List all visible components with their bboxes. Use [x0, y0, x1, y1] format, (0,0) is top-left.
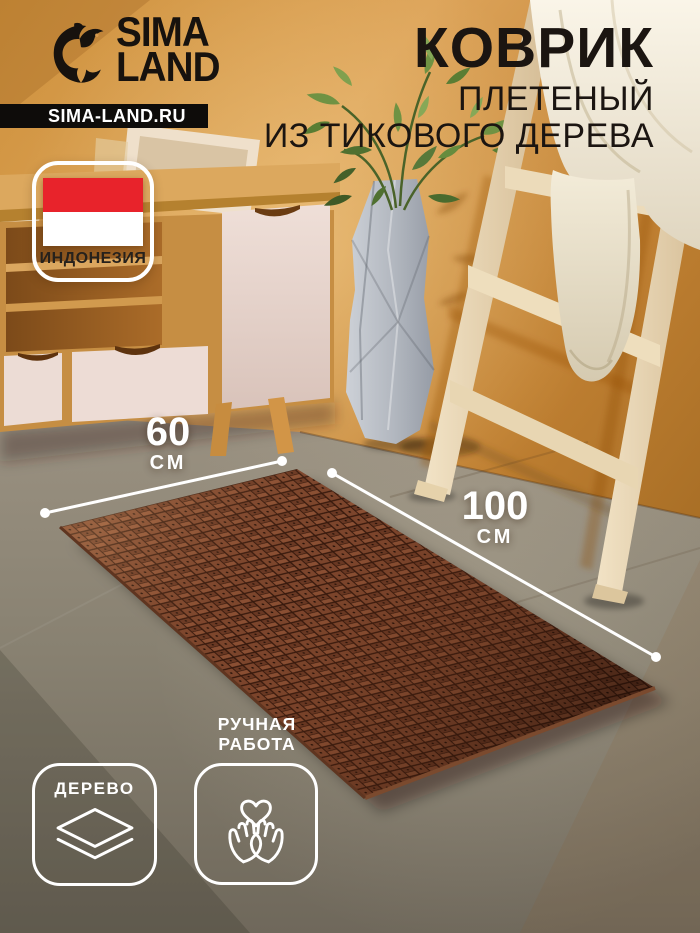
product-photo-card: SIMA LAND SIMA-LAND.RU КОВРИК ПЛЕТЕНЫЙ И… [0, 0, 700, 933]
website-url: SIMA-LAND.RU [48, 106, 186, 127]
length-value: 100 [452, 486, 538, 526]
dolphin-logo-icon [48, 18, 114, 92]
indonesia-flag [43, 178, 143, 246]
product-subtitle-line2: ИЗ ТИКОВОГО ДЕРЕВА [264, 118, 654, 155]
dimension-width-label: 60 СМ [126, 412, 210, 474]
origin-badge: ИНДОНЕЗИЯ [32, 161, 154, 282]
handmade-badge [194, 763, 318, 885]
product-title-block: КОВРИК ПЛЕТЕНЫЙ ИЗ ТИКОВОГО ДЕРЕВА [264, 20, 654, 155]
layers-icon [51, 806, 139, 864]
flag-white-stripe [43, 212, 143, 246]
product-title: КОВРИК [264, 20, 654, 76]
brand-logo: SIMA LAND [116, 14, 220, 84]
handmade-label: РУЧНАЯ РАБОТА [194, 714, 320, 754]
origin-country-label: ИНДОНЕЗИЯ [36, 250, 150, 268]
brand-name-line2: LAND [116, 49, 220, 84]
dimension-length-label: 100 СМ [452, 486, 538, 548]
width-value: 60 [126, 412, 210, 452]
material-label: ДЕРЕВО [35, 779, 154, 799]
flag-red-stripe [43, 178, 143, 212]
hands-heart-icon [211, 778, 301, 870]
material-badge: ДЕРЕВО [32, 763, 157, 886]
product-subtitle-line1: ПЛЕТЕНЫЙ [264, 81, 654, 118]
handmade-label-line1: РУЧНАЯ [194, 714, 320, 734]
length-unit: СМ [452, 526, 538, 548]
width-unit: СМ [126, 452, 210, 474]
handmade-label-line2: РАБОТА [194, 734, 320, 754]
website-banner: SIMA-LAND.RU [0, 104, 208, 128]
